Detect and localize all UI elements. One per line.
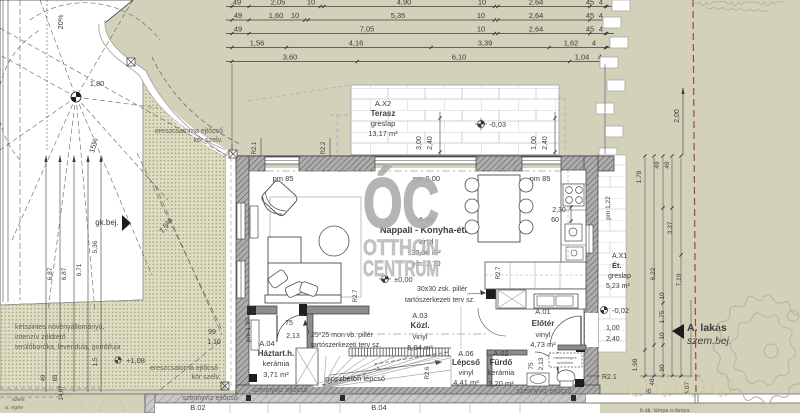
- svg-text:CENTRUM: CENTRUM: [363, 256, 439, 281]
- svg-text:48: 48: [649, 378, 656, 386]
- svg-text:20%: 20%: [56, 14, 65, 29]
- svg-text:49: 49: [234, 11, 242, 20]
- svg-text:90: 90: [659, 364, 666, 372]
- svg-text:vinyl: vinyl: [535, 330, 550, 339]
- svg-text:pm 85: pm 85: [530, 174, 551, 183]
- svg-text:R2.7: R2.7: [353, 289, 359, 302]
- svg-text:10: 10: [307, 0, 315, 7]
- svg-text:b.átj. lámpa o.lámpa: b.átj. lámpa o.lámpa: [640, 408, 690, 413]
- svg-text:szennyvíz ejtőcső: szennyvíz ejtőcső: [516, 388, 571, 395]
- svg-text:A.02: A.02: [493, 349, 508, 358]
- svg-text:-0,03: -0,03: [489, 120, 506, 129]
- svg-text:Előtér: Előtér: [532, 319, 555, 328]
- svg-text:2,64: 2,64: [529, 0, 544, 7]
- svg-text:49: 49: [234, 25, 242, 34]
- svg-text:Lépcső: Lépcső: [452, 358, 480, 367]
- svg-text:1,00: 1,00: [531, 136, 538, 150]
- svg-text:szellőzés: szellőzés: [557, 360, 573, 365]
- svg-text:szennyvíz ejtőcső: szennyvíz ejtőcső: [252, 387, 307, 394]
- svg-text:kerámia: kerámia: [488, 368, 516, 377]
- svg-text:szem.bej.: szem.bej.: [687, 335, 732, 347]
- svg-text:6,71: 6,71: [76, 263, 83, 276]
- svg-text:szelv.: szelv.: [12, 397, 26, 403]
- svg-text:R2.2: R2.2: [321, 141, 327, 154]
- svg-text:4: 4: [592, 39, 596, 48]
- svg-text:10: 10: [659, 292, 666, 300]
- svg-text:kör szelv.: kör szelv.: [191, 374, 220, 381]
- svg-text:A.X1: A.X1: [612, 253, 627, 260]
- svg-text:1,56: 1,56: [250, 39, 265, 48]
- svg-text:45: 45: [586, 11, 594, 20]
- svg-text:1,78: 1,78: [636, 170, 643, 183]
- svg-text:10: 10: [478, 0, 486, 7]
- svg-text:-0,02: -0,02: [612, 306, 629, 315]
- svg-text:5,23 m²: 5,23 m²: [606, 283, 630, 290]
- svg-text:3,00: 3,00: [416, 136, 423, 150]
- svg-text:3,60: 3,60: [283, 53, 298, 62]
- svg-text:R2.6: R2.6: [425, 366, 431, 379]
- svg-text:Fürdő: Fürdő: [490, 358, 513, 367]
- svg-text:49: 49: [664, 161, 671, 169]
- svg-text:A.X2: A.X2: [375, 99, 391, 108]
- svg-text:tartószerkezeti terv sz.: tartószerkezeti terv sz.: [311, 342, 381, 349]
- svg-text:Háztart.h.: Háztart.h.: [258, 349, 294, 358]
- svg-text:10: 10: [291, 11, 299, 20]
- svg-text:7,05: 7,05: [360, 25, 375, 34]
- svg-text:greslap: greslap: [371, 119, 396, 128]
- svg-text:szennyvíz ejtőcső: szennyvíz ejtőcső: [182, 395, 237, 402]
- svg-text:Ét.: Ét.: [612, 261, 622, 270]
- svg-text:14,07: 14,07: [59, 385, 65, 401]
- svg-text:2,40: 2,40: [606, 336, 620, 343]
- svg-text:10: 10: [477, 25, 485, 34]
- svg-text:kerámia: kerámia: [263, 359, 291, 368]
- svg-text:25*25 mon vb. pillér: 25*25 mon vb. pillér: [311, 332, 374, 339]
- svg-text:R2.1: R2.1: [602, 374, 617, 381]
- svg-text:2,40: 2,40: [427, 136, 434, 150]
- svg-text:vinyl: vinyl: [412, 332, 427, 341]
- svg-text:1,62: 1,62: [564, 39, 579, 48]
- svg-text:10: 10: [659, 332, 666, 340]
- svg-text:B.04: B.04: [371, 403, 386, 412]
- svg-text:1,80: 1,80: [90, 79, 105, 88]
- svg-text:30x30 zsk. pillér: 30x30 zsk. pillér: [417, 286, 468, 293]
- svg-text:2,30: 2,30: [552, 207, 566, 214]
- svg-text:.49: .49: [231, 0, 241, 7]
- svg-text:greslap: greslap: [608, 273, 631, 280]
- svg-text:6,87: 6,87: [61, 267, 68, 280]
- svg-text:R2.1: R2.1: [252, 141, 258, 154]
- svg-text:A.04: A.04: [259, 339, 274, 348]
- svg-text:6,22: 6,22: [650, 267, 657, 280]
- svg-text:3,71 m²: 3,71 m²: [263, 370, 289, 379]
- svg-text:2,20 m²: 2,20 m²: [488, 379, 514, 388]
- svg-text:10: 10: [477, 11, 485, 20]
- svg-text:49: 49: [654, 161, 661, 169]
- svg-text:4,90: 4,90: [397, 0, 412, 7]
- svg-text:4,41 m²: 4,41 m²: [453, 378, 479, 387]
- svg-text:2,00: 2,00: [674, 109, 681, 123]
- svg-text:1,98: 1,98: [632, 358, 639, 371]
- svg-text:ÓC: ÓC: [363, 164, 439, 242]
- svg-text:2,40: 2,40: [542, 136, 549, 150]
- svg-text:Közl.: Közl.: [410, 321, 429, 330]
- svg-text:pm 1,22: pm 1,22: [605, 196, 612, 220]
- svg-text:3,37: 3,37: [667, 221, 674, 234]
- svg-text:5,35: 5,35: [391, 11, 406, 20]
- svg-text:4,16: 4,16: [349, 39, 364, 48]
- svg-text:3,39: 3,39: [478, 39, 493, 48]
- svg-text:4: 4: [599, 25, 603, 34]
- svg-text:2,64: 2,64: [529, 11, 544, 20]
- svg-text:45: 45: [586, 0, 594, 7]
- svg-text:4: 4: [599, 0, 603, 7]
- svg-text:1,04: 1,04: [575, 53, 590, 62]
- svg-text:tartószerkezeti terv sz.: tartószerkezeti terv sz.: [405, 297, 475, 304]
- svg-text:A.06: A.06: [458, 349, 473, 358]
- svg-text:1,60: 1,60: [269, 11, 284, 20]
- svg-text:99: 99: [208, 329, 216, 336]
- svg-text:75: 75: [285, 320, 293, 327]
- svg-text:45: 45: [586, 25, 594, 34]
- svg-text:B.02: B.02: [190, 403, 205, 412]
- svg-text:kör szelv.: kör szelv.: [193, 137, 222, 144]
- svg-text:gipszbeton lépcső: gipszbeton lépcső: [325, 374, 385, 383]
- svg-text:5,36: 5,36: [92, 240, 99, 253]
- svg-text:terülőboróka, levendula, gombf: terülőboróka, levendula, gombfuja: [15, 344, 121, 351]
- svg-text:vinyl: vinyl: [458, 368, 473, 377]
- svg-text:a. egée: a. egée: [5, 405, 23, 411]
- svg-text:6,10: 6,10: [452, 53, 467, 62]
- svg-text:2,13: 2,13: [286, 333, 300, 340]
- svg-text:1,10: 1,10: [207, 339, 221, 346]
- svg-text:5,94 m²: 5,94 m²: [407, 343, 433, 352]
- svg-text:R2.7: R2.7: [496, 266, 502, 279]
- svg-text:60: 60: [551, 217, 559, 224]
- svg-text:1,5: 1,5: [92, 357, 99, 366]
- svg-text:13,17 m²: 13,17 m²: [368, 129, 398, 138]
- svg-text:A. lakás: A. lakás: [687, 322, 727, 334]
- svg-text:1,75: 1,75: [659, 310, 666, 323]
- svg-text:2,64: 2,64: [529, 25, 544, 34]
- svg-text:4: 4: [599, 11, 603, 20]
- svg-text:A.03: A.03: [412, 311, 427, 320]
- svg-text:1,00: 1,00: [606, 325, 620, 332]
- svg-text:gk.bej.: gk.bej.: [95, 218, 119, 227]
- svg-text:7,19: 7,19: [676, 273, 683, 286]
- svg-text:49: 49: [41, 374, 47, 381]
- svg-text:+1,08: +1,08: [126, 356, 145, 365]
- svg-text:65: 65: [53, 374, 59, 381]
- svg-text:2,13: 2,13: [538, 357, 545, 370]
- svg-text:Terasz: Terasz: [371, 109, 396, 118]
- svg-text:intenzív zöldtető: intenzív zöldtető: [15, 334, 66, 341]
- svg-text:75: 75: [528, 362, 535, 370]
- svg-text:4,73 m²: 4,73 m²: [530, 340, 556, 349]
- svg-text:2,05: 2,05: [271, 0, 286, 7]
